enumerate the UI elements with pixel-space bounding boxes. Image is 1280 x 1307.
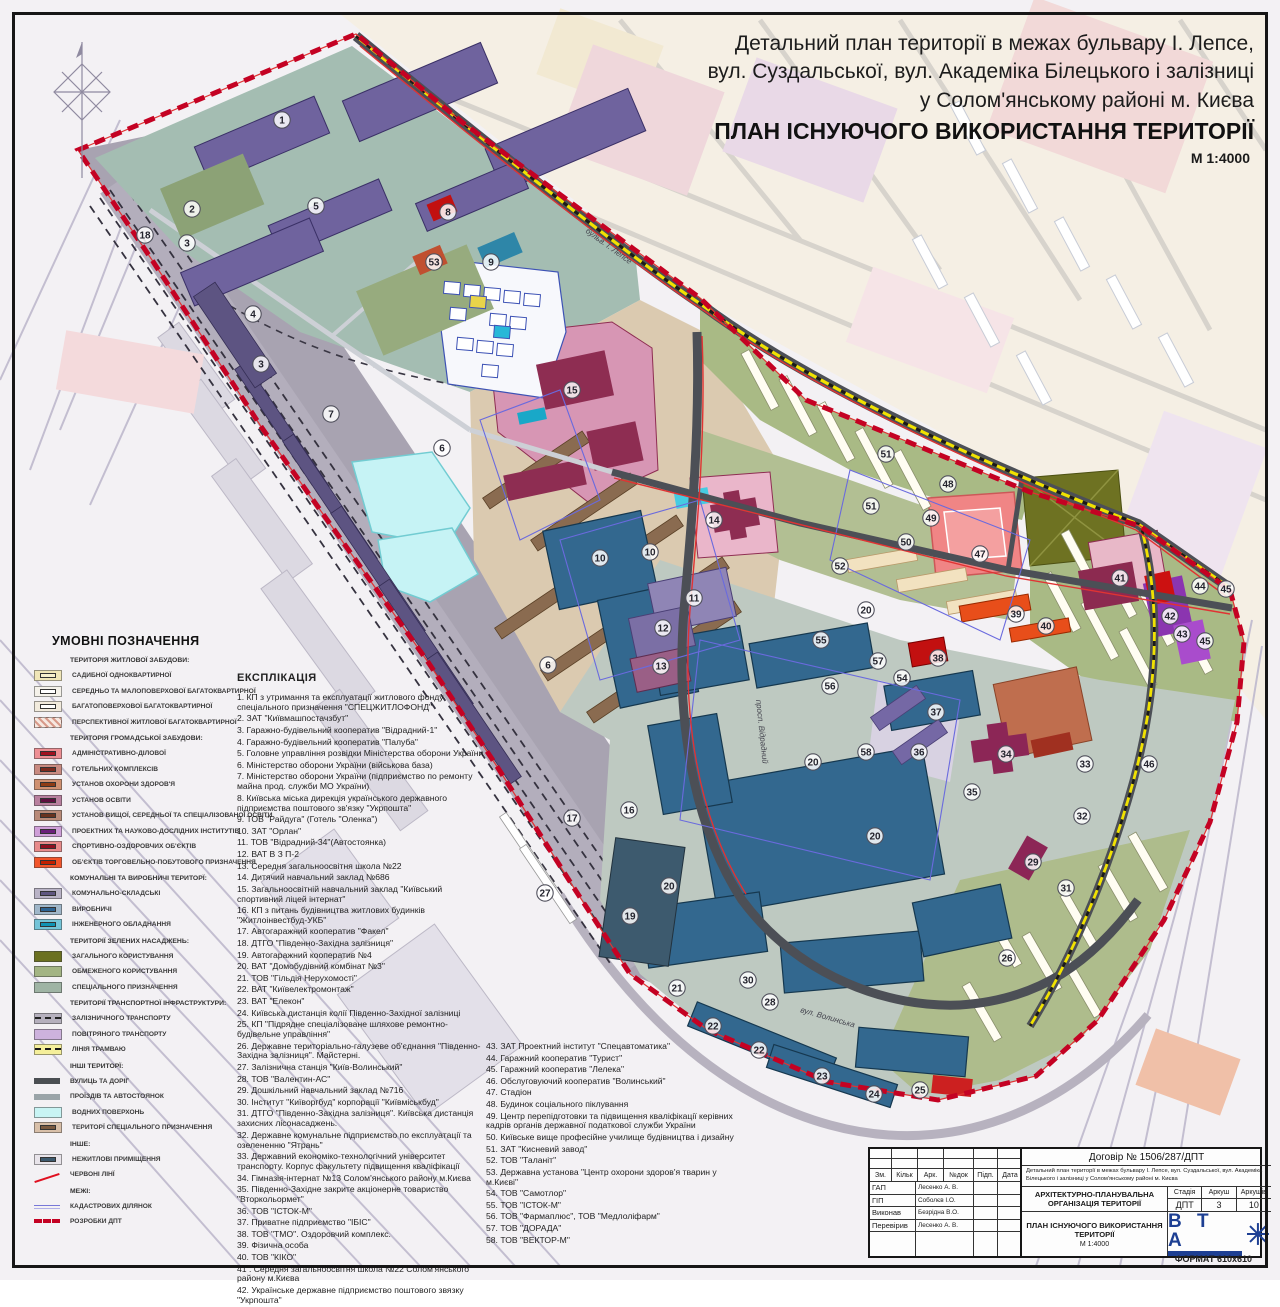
explication-item: 39. Фізична особа [237, 1241, 485, 1251]
legend-item: БАГАТОПОВЕРХОВОЇ БАГАТОКВАРТИРНОЇ [32, 699, 244, 715]
legend-group-heading: КОМУНАЛЬНІ ТА ВИРОБНИЧІ ТЕРИТОРЇ: [70, 875, 244, 882]
map-label-number: 34 [1000, 750, 1012, 761]
legend-item: САДИБНОЇ ОДНОКВАРТИРНОЇ [32, 668, 244, 684]
explication-item: 56. ТОВ "Фармаплюс", ТОВ "Медлоліфарм" [486, 1212, 744, 1222]
explication-item: 4. Гаражно-будівельний кооператив "Палуб… [237, 738, 485, 748]
legend-group-heading: ТЕРИТОРІЇ ТРАНСПОРТНОЇ ІНФРАСТРУКТУРИ: [70, 1000, 244, 1007]
legend-swatch [34, 966, 62, 977]
company-logo: В Т А [1168, 1212, 1271, 1256]
legend-label: УСТАНОВ ОХОРОНИ ЗДОРОВ'Я [72, 781, 175, 788]
legend: УМОВНІ ПОЗНАЧЕННЯ ТЕРИТОРІЯ ЖИТЛОВОЇ ЗАБ… [32, 634, 244, 1230]
map-label-number: 33 [1079, 760, 1091, 771]
legend-item: СПОРТИВНО-ОЗДОРОВЧИХ ОБ'ЄКТІВ [32, 839, 244, 855]
map-label-number: 4 [250, 310, 256, 321]
map-label-number: 43 [1176, 630, 1188, 641]
legend-label: ІНЖЕНЕРНОГО ОБЛАДНАННЯ [72, 921, 171, 928]
explication-item: 43. ЗАТ Проектний інститут "Спецавтомати… [486, 1042, 744, 1052]
legend-item: ВОДНИХ ПОВЕРХОНЬ [32, 1105, 244, 1121]
legend-swatch [34, 686, 62, 697]
legend-swatch [34, 888, 62, 899]
legend-swatch [34, 1202, 60, 1211]
map-label-number: 27 [539, 889, 551, 900]
explication-item: 32. Державне комунальне підприємство по … [237, 1131, 485, 1151]
map-label-number: 8 [445, 208, 451, 219]
legend-label: ЧЕРВОНІ ЛІНЇ [70, 1171, 115, 1178]
explication-item: 40. ТОВ "КІКО" [237, 1253, 485, 1263]
legend-swatch [34, 904, 62, 915]
legend-swatch [34, 810, 62, 821]
explication-item: 28. ТОВ "Валентин-АС" [237, 1075, 485, 1085]
map-label-number: 13 [655, 662, 667, 673]
map-label-number: 57 [872, 657, 884, 668]
legend-swatch [34, 717, 62, 728]
legend-label: ТЕРИТОРЇ СПЕЦІАЛЬНОГО ПРИЗНАЧЕННЯ [72, 1124, 212, 1131]
plan-sheet: { "title": { "line1": "Детальний план те… [0, 0, 1280, 1280]
legend-item: ТЕРИТОРЇ СПЕЦІАЛЬНОГО ПРИЗНАЧЕННЯ [32, 1120, 244, 1136]
logo-text: В Т А [1168, 1212, 1242, 1250]
map-label-number: 14 [708, 516, 720, 527]
legend-label: ПРОЕКТНИХ ТА НАУКОВО-ДОСЛІДНИХ ІНСТИТУТІ… [72, 828, 239, 835]
map-label-number: 2 [189, 205, 195, 216]
title-line-2: вул. Суздальської, вул. Академіка Білець… [708, 58, 1254, 86]
legend-group-heading: ІНШЕ: [70, 1141, 244, 1148]
legend-swatch [34, 982, 62, 993]
signature-row: Виконав Безрідна В.О. [870, 1207, 1020, 1220]
map-label-number: 17 [566, 814, 578, 825]
explication-item: 57. ТОВ "ДОРАДА" [486, 1224, 744, 1234]
map-label-number: 58 [860, 748, 872, 759]
contract-number: Договір № 1506/287/ДПТ [1022, 1149, 1271, 1166]
legend-swatch [34, 1044, 62, 1055]
map-label-number: 12 [657, 624, 669, 635]
legend-swatch [34, 857, 62, 868]
section-title: АРХІТЕКТУРНО-ПЛАНУВАЛЬНА ОРГАНІЗАЦІЯ ТЕР… [1022, 1187, 1168, 1211]
map-label-number: 18 [139, 231, 151, 242]
map-label-number: 24 [868, 1090, 880, 1101]
project-description: Детальний план території в межах бульвар… [1022, 1166, 1271, 1187]
explication-item: 42. Українське державне підприємство пош… [237, 1286, 485, 1306]
legend-label: СПЕЦІАЛЬНОГО ПРИЗНАЧЕННЯ [72, 984, 178, 991]
legend-item: ПРОЇЗДІВ ТА АВТОСТОЯНОК [32, 1089, 244, 1105]
explication-item: 14. Дитячий навчальний заклад №686 [237, 873, 485, 883]
explication-item: 51. ЗАТ "Кисневий завод" [486, 1145, 744, 1155]
explication-item: 48. Будинок соціального піклування [486, 1100, 744, 1110]
legend-swatch [34, 826, 62, 837]
explication-item: 17. Автогаражний кооператив "Факел" [237, 927, 485, 937]
title-line-1: Детальний план території в межах бульвар… [708, 30, 1254, 58]
explication-item: 29. Дошкільний навчальний заклад №716 [237, 1086, 485, 1096]
drawing-scale: М 1:4000 [1080, 1241, 1109, 1248]
explication-item: 7. Міністерство оборони України (підприє… [237, 772, 485, 792]
legend-swatch [34, 1122, 62, 1133]
legend-group-heading: ІНШІ ТЕРИТОРЇ: [70, 1063, 244, 1070]
map-label-number: 3 [258, 360, 264, 371]
logo-burst-icon [1245, 1221, 1271, 1247]
map-label-number: 46 [1143, 760, 1155, 771]
explication-item: 41 . Середня загальноосвітня школа №22 С… [237, 1265, 485, 1285]
legend-group-heading: ТЕРИТОРІЯ ЖИТЛОВОЇ ЗАБУДОВИ: [70, 657, 244, 664]
map-label-number: 6 [439, 444, 445, 455]
map-label-number: 1 [279, 116, 285, 127]
legend-item: ПРОЕКТНИХ ТА НАУКОВО-ДОСЛІДНИХ ІНСТИТУТІ… [32, 824, 244, 840]
map-label-number: 20 [869, 832, 881, 843]
explication-item: 34. Гімназія-інтернат №13 Солом'янського… [237, 1174, 485, 1184]
legend-label: БАГАТОПОВЕРХОВОЇ БАГАТОКВАРТИРНОЇ [72, 703, 212, 710]
map-label-number: 48 [942, 480, 954, 491]
stage-value: ДПТ [1168, 1199, 1202, 1211]
explication-heading: ЕКСПЛІКАЦІЯ [237, 672, 485, 684]
map-label-number: 53 [428, 258, 440, 269]
legend-label: ОБМЕЖЕНОГО КОРИСТУВАННЯ [72, 968, 177, 975]
legend-item: РОЗРОБКИ ДПТ [32, 1214, 244, 1230]
legend-item: ПОВІТРЯНОГО ТРАНСПОРТУ [32, 1027, 244, 1043]
legend-item: КАДАСТРОВИХ ДІЛЯНОК [32, 1199, 244, 1215]
explication-item: 11. ТОВ "Відрадний-34"(Автостоянка) [237, 838, 485, 848]
explication-column-2: 43. ЗАТ Проектний інститут "Спецавтомати… [486, 1042, 744, 1247]
legend-swatch [34, 919, 62, 930]
map-label-number: 44 [1194, 582, 1206, 593]
explication-item: 45. Гаражний кооператив "Лелека" [486, 1065, 744, 1075]
explication-item: 38. ТОВ "ТМО". Оздоровчий комплекс. [237, 1230, 485, 1240]
explication-item: 20. ВАТ "Домобудівний комбінат №3" [237, 962, 485, 972]
legend-label: КАДАСТРОВИХ ДІЛЯНОК [70, 1203, 152, 1210]
map-label-number: 31 [1060, 884, 1072, 895]
explication-item: 46. Обслуговуючий кооператив "Волинський… [486, 1077, 744, 1087]
explication-item: 10. ЗАТ "Орлан" [237, 827, 485, 837]
explication-item: 37. Приватне підприємство "ІБІС" [237, 1218, 485, 1228]
legend-swatch [34, 951, 62, 962]
explication-item: 35. Південно-Західне закрите акціонерне … [237, 1185, 485, 1205]
map-label-number: 11 [689, 594, 700, 605]
stage-table: Стадія Аркуш Аркушів ДПТ 3 10 [1168, 1187, 1271, 1211]
explication-item: 9. ТОВ "Райдуга" (Готель "Оленка") [237, 815, 485, 825]
map-label-number: 45 [1199, 637, 1211, 648]
map-label-number: 35 [966, 788, 978, 799]
legend-label: УСТАНОВ ОСВІТИ [72, 797, 131, 804]
legend-swatch [34, 1094, 60, 1100]
legend-swatch [34, 1029, 62, 1040]
legend-label: ОБ'ЄКТІВ ТОРГОВЕЛЬНО-ПОБУТОВОГО ПРИЗНАЧЕ… [72, 859, 256, 866]
title-line-3: у Солом'янському районі м. Києва [708, 87, 1254, 115]
legend-heading: УМОВНІ ПОЗНАЧЕННЯ [52, 634, 244, 648]
explication-column-1: ЕКСПЛІКАЦІЯ 1. КП з утримання та експлуа… [237, 672, 485, 1307]
explication-item: 53. Державна установа "Центр охорони здо… [486, 1168, 744, 1188]
legend-item: ЗАГАЛЬНОГО КОРИСТУВАННЯ [32, 949, 244, 965]
map-label-number: 22 [707, 1022, 719, 1033]
map-label-number: 20 [807, 758, 819, 769]
explication-item: 5. Головне управління розвідки Міністерс… [237, 749, 485, 759]
map-label-number: 3 [184, 239, 190, 250]
legend-swatch [34, 1170, 60, 1179]
map-label-number: 39 [1010, 610, 1022, 621]
explication-item: 24. Київська дистанція колії Південно-За… [237, 1009, 485, 1019]
map-label-number: 41 [1114, 574, 1126, 585]
legend-item: ІНЖЕНЕРНОГО ОБЛАДНАННЯ [32, 917, 244, 933]
legend-swatch [34, 764, 62, 775]
legend-item: КОМУНАЛЬНО-СКЛАДСЬКІ [32, 886, 244, 902]
map-label-number: 47 [974, 550, 986, 561]
map-label-number: 6 [545, 661, 551, 672]
map-label-number: 7 [328, 410, 334, 421]
legend-label: СПОРТИВНО-ОЗДОРОВЧИХ ОБ'ЄКТІВ [72, 843, 196, 850]
explication-item: 1. КП з утримання та експлуатації житлов… [237, 693, 485, 713]
legend-item: ГОТЕЛЬНИХ КОМПЛЕКСІВ [32, 762, 244, 778]
legend-group-heading: МЕЖІ: [70, 1188, 244, 1195]
legend-swatch [34, 779, 62, 790]
drawing-title: ПЛАН ІСНУЮЧОГО ВИКОРИСТАННЯ ТЕРИТОРІЇ М … [1022, 1212, 1168, 1256]
plan-scale: М 1:4000 [708, 150, 1250, 166]
map-label-number: 20 [860, 606, 872, 617]
legend-swatch [34, 795, 62, 806]
legend-label: ВИРОБНИЧІ [72, 906, 112, 913]
legend-label: ПРОЇЗДІВ ТА АВТОСТОЯНОК [70, 1093, 164, 1100]
legend-item: ОБМЕЖЕНОГО КОРИСТУВАННЯ [32, 964, 244, 980]
legend-item: ЗАЛІЗНИЧНОГО ТРАНСПОРТУ [32, 1011, 244, 1027]
legend-label: ЗАГАЛЬНОГО КОРИСТУВАННЯ [72, 953, 173, 960]
explication-item: 25. КП "Підрядне спеціалізоване шляхове … [237, 1020, 485, 1040]
legend-item: ВУЛИЦЬ ТА ДОРІГ [32, 1074, 244, 1090]
map-label-number: 51 [865, 502, 877, 513]
legend-swatch [34, 841, 62, 852]
explication-item: 50. Київське вище професійне училище буд… [486, 1133, 744, 1143]
explication-item: 30. Інститут "Київоргбуд" корпорації "Ки… [237, 1098, 485, 1108]
legend-item: ЛІНІЯ ТРАМВАЮ [32, 1042, 244, 1058]
legend-item: УСТАНОВ ОХОРОНИ ЗДОРОВ'Я [32, 777, 244, 793]
map-label-number: 40 [1040, 622, 1052, 633]
explication-item: 18. ДТГО "Південно-Західна залізниця" [237, 939, 485, 949]
map-label-number: 9 [488, 258, 494, 269]
legend-swatch [34, 1078, 60, 1084]
map-label-number: 49 [925, 514, 937, 525]
map-label-number: 32 [1076, 812, 1088, 823]
map-label-number: 26 [1001, 954, 1013, 965]
map-label-number: 10 [644, 548, 656, 559]
explication-item: 33. Державний економіко-технологічний ун… [237, 1152, 485, 1172]
explication-item: 23. ВАТ "Елекон" [237, 997, 485, 1007]
map-label-number: 5 [313, 202, 319, 213]
plan-title: ПЛАН ІСНУЮЧОГО ВИКОРИСТАННЯ ТЕРИТОРІЇ [708, 118, 1254, 145]
sheets-total: 10 [1237, 1199, 1271, 1211]
legend-label: ПЕРСПЕКТИВНОЇ ЖИТЛОВОЇ БАГАТОКВАРТИРНОЇ [72, 719, 237, 726]
legend-label: ЗАЛІЗНИЧНОГО ТРАНСПОРТУ [72, 1015, 171, 1022]
map-label-number: 51 [880, 450, 892, 461]
map-label-number: 22 [753, 1046, 765, 1057]
map-label-number: 29 [1027, 858, 1039, 869]
explication-item: 22. ВАТ "Київелектромонтаж" [237, 985, 485, 995]
signature-header-row: Зм. Кільк Арк. №док Підп. Дата [870, 1169, 1020, 1182]
explication-item: 54. ТОВ "Самотлор" [486, 1189, 744, 1199]
legend-label: АДМІНІСТРАТИВНО-ДІЛОВОЇ [72, 750, 166, 757]
map-label-number: 55 [815, 636, 827, 647]
explication-item: 49. Центр перепідготовки та підвищення к… [486, 1112, 744, 1132]
legend-label: САДИБНОЇ ОДНОКВАРТИРНОЇ [72, 672, 171, 679]
map-label-number: 19 [624, 912, 636, 923]
explication-item: 3. Гаражно-будівельний кооператив "Відра… [237, 726, 485, 736]
map-label-number: 36 [913, 748, 925, 759]
explication-item: 16. КП з питань будівництва житлових буд… [237, 906, 485, 926]
explication-item: 8. Київська міська дирекція українського… [237, 794, 485, 814]
explication-item: 52. ТОВ "Таланіт" [486, 1156, 744, 1166]
legend-label: КОМУНАЛЬНО-СКЛАДСЬКІ [72, 890, 160, 897]
legend-label: ВОДНИХ ПОВЕРХОНЬ [72, 1109, 144, 1116]
explication-item: 26. Державне територіально-галузеве об'є… [237, 1042, 485, 1062]
legend-item: УСТАНОВ ВИЩОЇ, СЕРЕДНЬОЇ ТА СПЕЦІАЛІЗОВА… [32, 808, 244, 824]
map-label-number: 50 [900, 538, 912, 549]
map-label-number: 23 [816, 1072, 828, 1083]
legend-item: ВИРОБНИЧІ [32, 902, 244, 918]
explication-item: 31. ДТГО "Південно-Західна залізниця". К… [237, 1109, 485, 1129]
legend-item: СЕРЕДНЬО ТА МАЛОПОВЕРХОВОЇ БАГАТОКВАРТИР… [32, 684, 244, 700]
legend-label: РОЗРОБКИ ДПТ [70, 1218, 122, 1225]
explication-item: 2. ЗАТ "Київмашпостачзбут" [237, 714, 485, 724]
signature-row: ГІП Соболєв І.О. [870, 1195, 1020, 1208]
title-block: Зм. Кільк Арк. №док Підп. Дата ГАП Лесен… [868, 1147, 1262, 1258]
legend-label: ЛІНІЯ ТРАМВАЮ [72, 1046, 126, 1053]
explication-item: 55. ТОВ "ІСТОК-М" [486, 1201, 744, 1211]
legend-item: НЕЖИТЛОВІ ПРИМІЩЕННЯ [32, 1152, 244, 1168]
legend-item: ПЕРСПЕКТИВНОЇ ЖИТЛОВОЇ БАГАТОКВАРТИРНОЇ [32, 715, 244, 731]
explication-item: 12. ВАТ В З П-2 [237, 850, 485, 860]
legend-label: НЕЖИТЛОВІ ПРИМІЩЕННЯ [72, 1156, 160, 1163]
explication-item: 21. ТОВ "Гільдія Нерухомості" [237, 974, 485, 984]
map-label-number: 42 [1164, 612, 1176, 623]
legend-group-heading: ТЕРИТОРІЇ ЗЕЛЕНИХ НАСАДЖЕНЬ: [70, 938, 244, 945]
map-label-number: 10 [594, 554, 606, 565]
legend-swatch [34, 1154, 62, 1165]
map-label-number: 21 [671, 984, 683, 995]
legend-label: ВУЛИЦЬ ТА ДОРІГ [70, 1078, 129, 1085]
map-label-number: 15 [566, 386, 578, 397]
legend-swatch [34, 1013, 62, 1024]
explication-item: 13. Середня загальноосвітня школа №22 [237, 862, 485, 872]
map-label-number: 37 [930, 708, 942, 719]
legend-swatch [34, 748, 62, 759]
legend-groups: ТЕРИТОРІЯ ЖИТЛОВОЇ ЗАБУДОВИ:САДИБНОЇ ОДН… [32, 657, 244, 1230]
legend-item: ЧЕРВОНІ ЛІНЇ [32, 1167, 244, 1183]
explication-item: 36. ТОВ "ІСТОК-М" [237, 1207, 485, 1217]
legend-swatch [34, 1217, 60, 1226]
legend-swatch [34, 701, 62, 712]
legend-item: УСТАНОВ ОСВІТИ [32, 793, 244, 809]
legend-label: ПОВІТРЯНОГО ТРАНСПОРТУ [72, 1031, 166, 1038]
format-label: ФОРМАТ 610х610 [1175, 1254, 1252, 1264]
legend-item: СПЕЦІАЛЬНОГО ПРИЗНАЧЕННЯ [32, 980, 244, 996]
explication-item: 15. Загальноосвітній навчальний заклад "… [237, 885, 485, 905]
map-label-number: 28 [764, 998, 776, 1009]
map-label-number: 45 [1220, 585, 1232, 596]
legend-swatch [34, 1107, 62, 1118]
legend-label: СЕРЕДНЬО ТА МАЛОПОВЕРХОВОЇ БАГАТОКВАРТИР… [72, 688, 256, 695]
map-title: Детальний план території в межах бульвар… [708, 30, 1254, 166]
explication-item: 6. Міністерство оборони України (військо… [237, 761, 485, 771]
explication-item: 27. Залізнична станція "Київ-Волинський" [237, 1063, 485, 1073]
explication-item: 58. ТОВ "ВЕКТОР-М" [486, 1236, 744, 1246]
sheet-number: 3 [1202, 1199, 1236, 1211]
map-label-number: 56 [824, 682, 836, 693]
map-label-number: 54 [896, 674, 908, 685]
explication-item: 44. Гаражний кооператив "Турист" [486, 1054, 744, 1064]
map-label-number: 16 [623, 806, 635, 817]
map-label-number: 25 [914, 1086, 926, 1097]
explication-item: 47. Стадіон [486, 1088, 744, 1098]
map-label-number: 30 [742, 976, 754, 987]
map-label-number: 20 [663, 882, 675, 893]
legend-item: ОБ'ЄКТІВ ТОРГОВЕЛЬНО-ПОБУТОВОГО ПРИЗНАЧЕ… [32, 855, 244, 871]
legend-group-heading: ТЕРИТОРІЯ ГРОМАДСЬКОЇ ЗАБУДОВИ: [70, 735, 244, 742]
map-label-number: 52 [834, 562, 846, 573]
legend-label: ГОТЕЛЬНИХ КОМПЛЕКСІВ [72, 766, 158, 773]
map-label-number: 38 [932, 654, 944, 665]
signature-row: ГАП Лесенко А. В. [870, 1182, 1020, 1195]
explication-item: 19. Автогаражний кооператив №4 [237, 951, 485, 961]
legend-item: АДМІНІСТРАТИВНО-ДІЛОВОЇ [32, 746, 244, 762]
signature-row: Перевірив Лесенко А. В. [870, 1220, 1020, 1233]
title-block-signatures: Зм. Кільк Арк. №док Підп. Дата ГАП Лесен… [870, 1149, 1022, 1256]
legend-swatch [34, 670, 62, 681]
